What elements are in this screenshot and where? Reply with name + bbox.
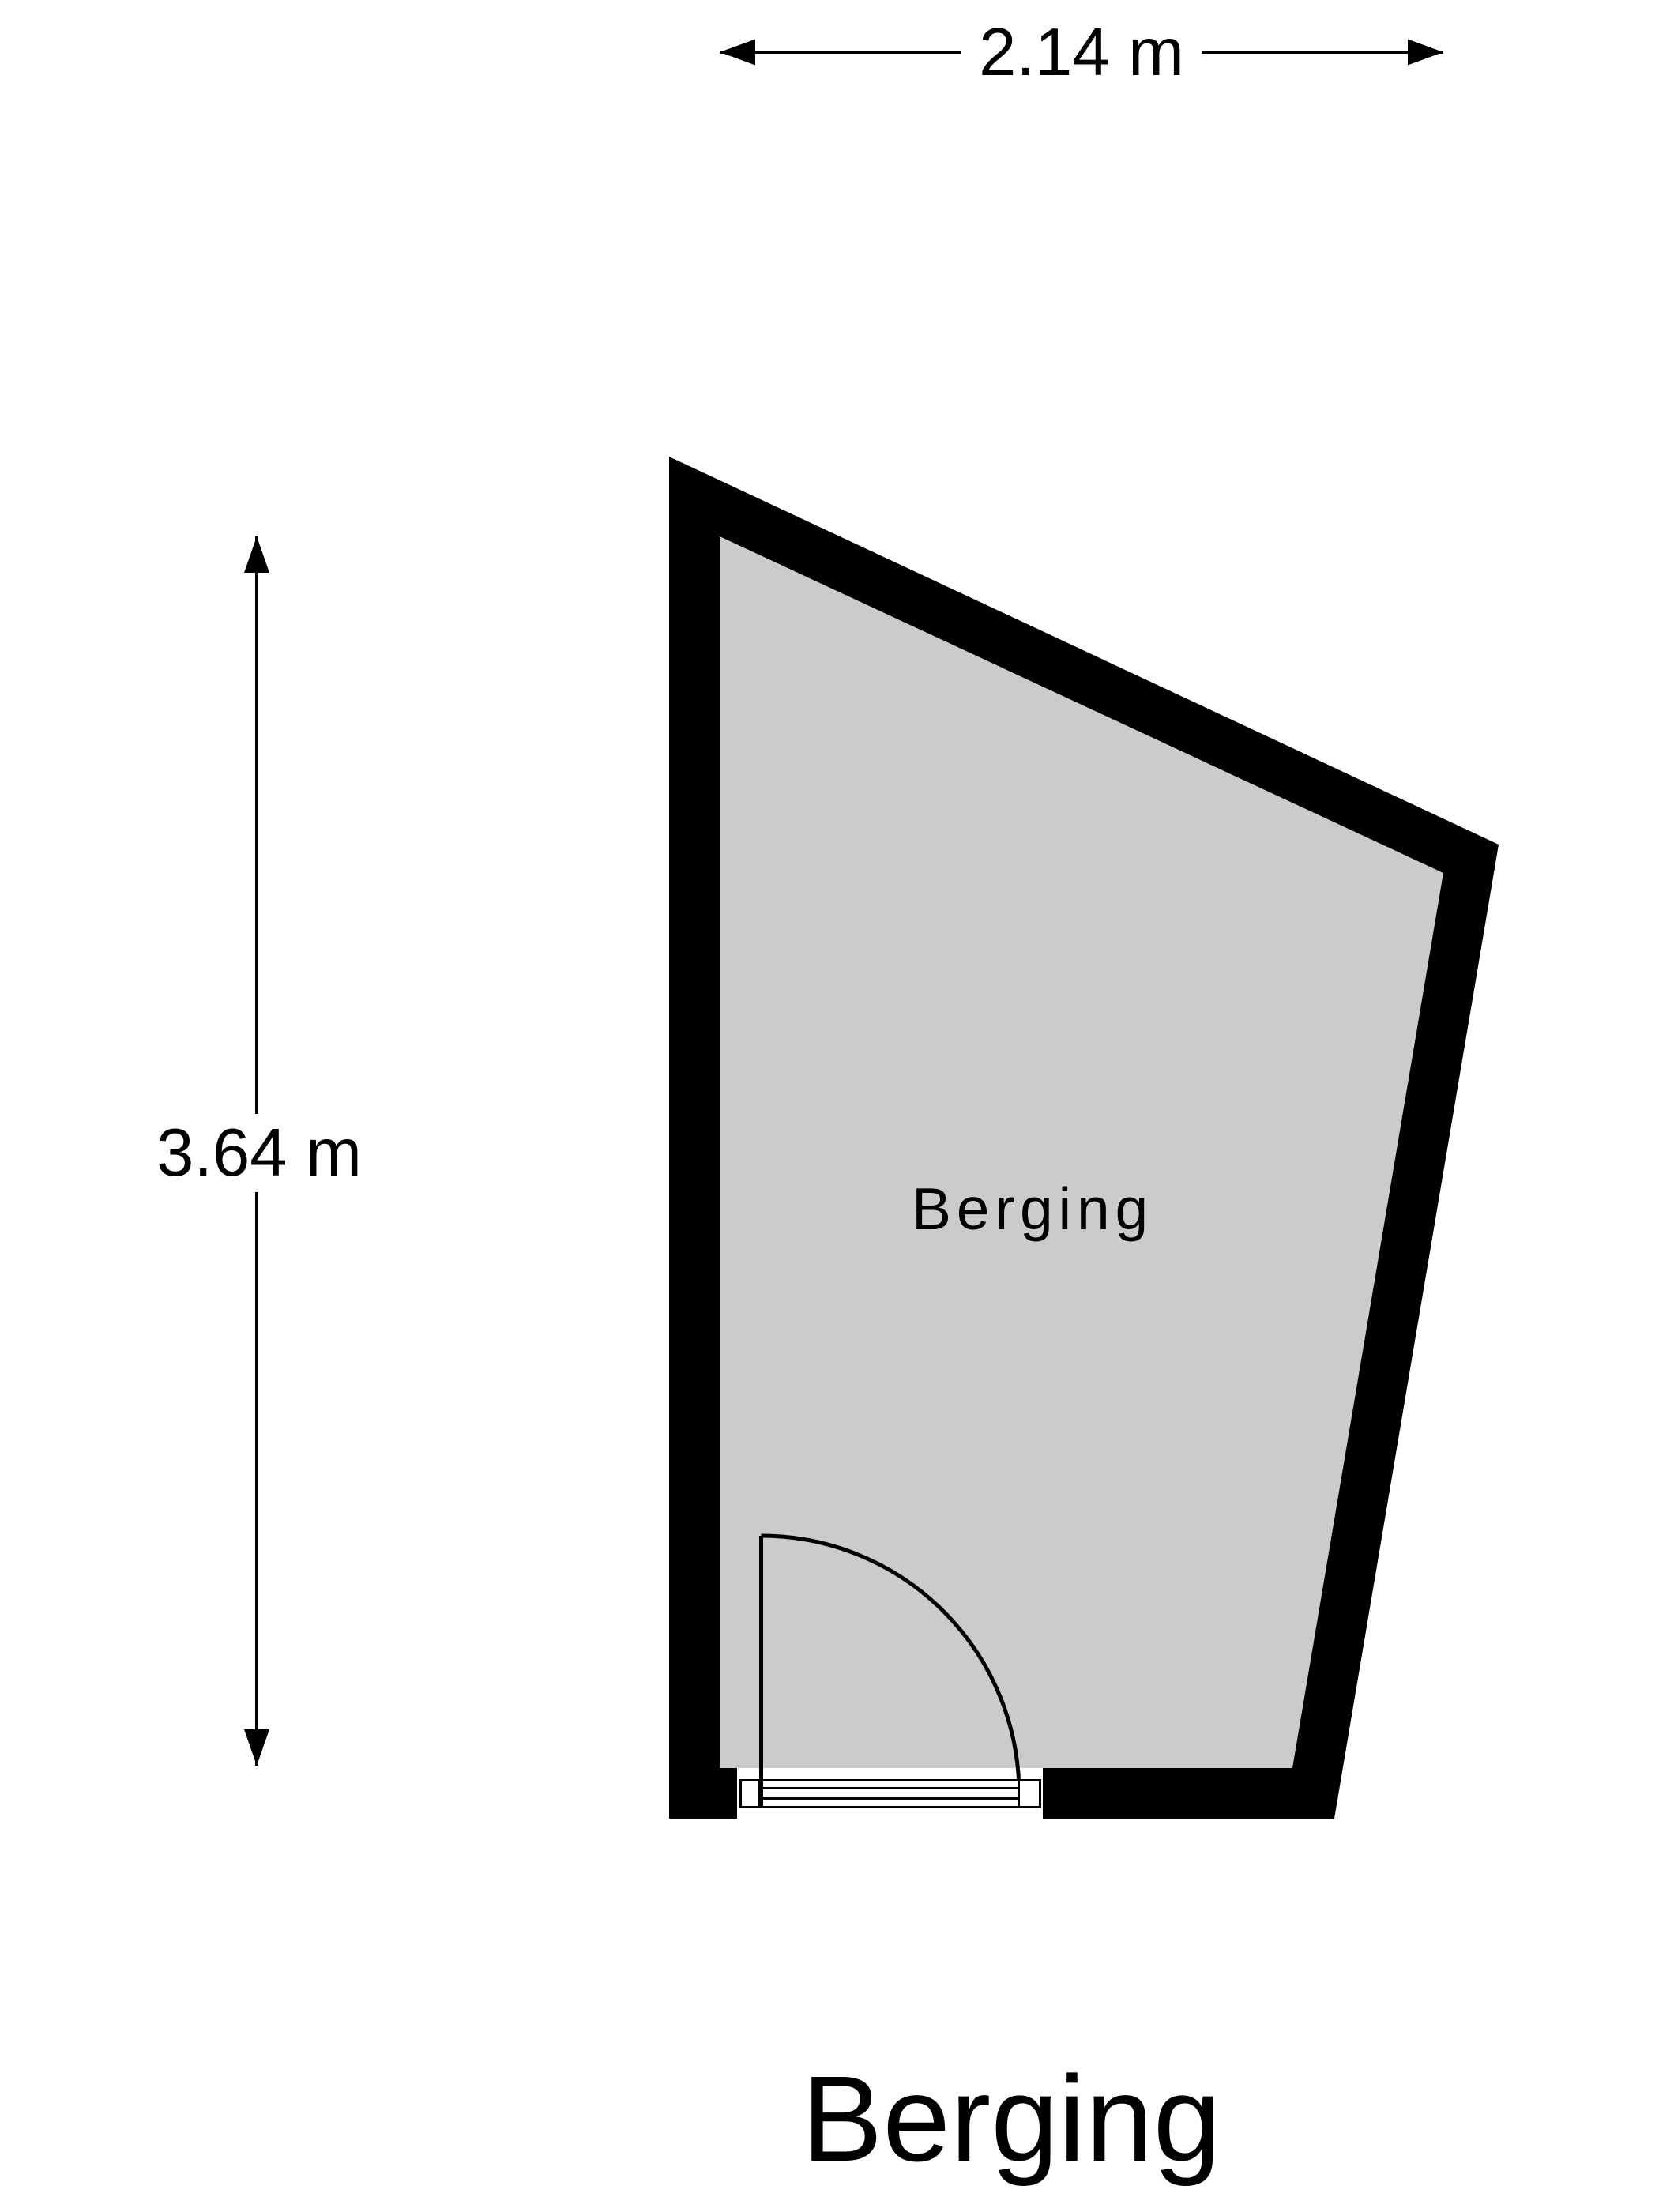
svg-text:Berging: Berging (912, 1176, 1153, 1242)
svg-text:3.64 m: 3.64 m (156, 1115, 362, 1191)
svg-text:Berging: Berging (802, 2051, 1221, 2187)
svg-text:2.14 m: 2.14 m (979, 15, 1184, 90)
